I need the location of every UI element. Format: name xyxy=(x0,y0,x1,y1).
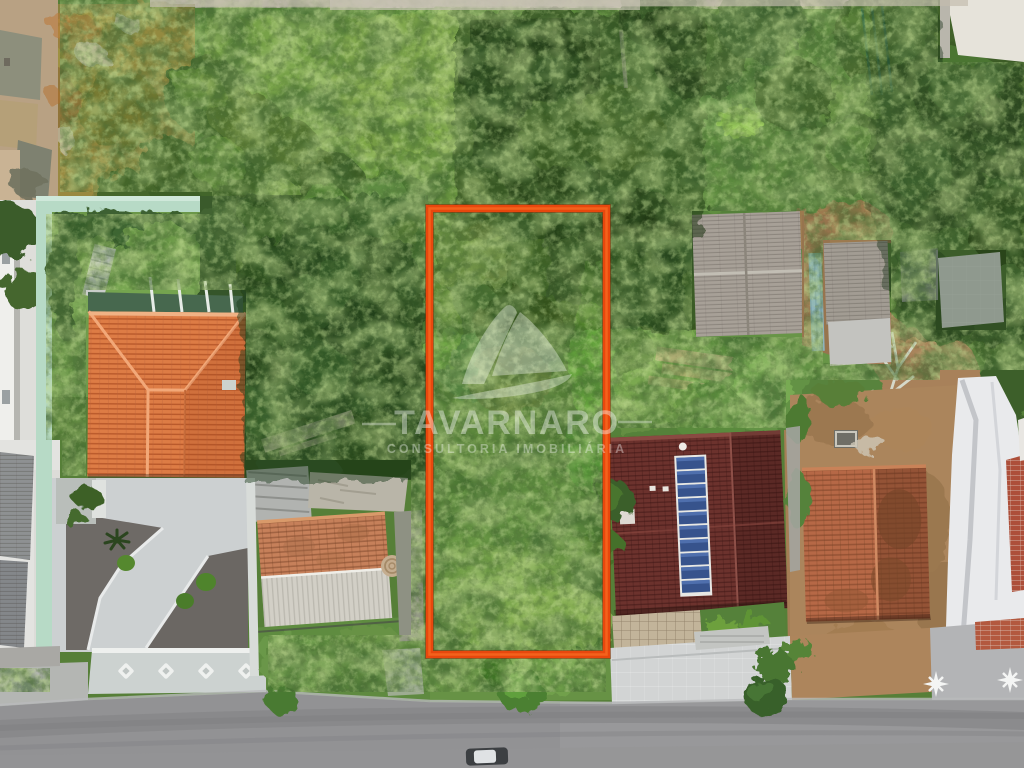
svg-text:TAVARNARO: TAVARNARO xyxy=(394,404,620,442)
svg-text:CONSULTORIA IMOBILIÁRIA: CONSULTORIA IMOBILIÁRIA xyxy=(387,441,627,456)
